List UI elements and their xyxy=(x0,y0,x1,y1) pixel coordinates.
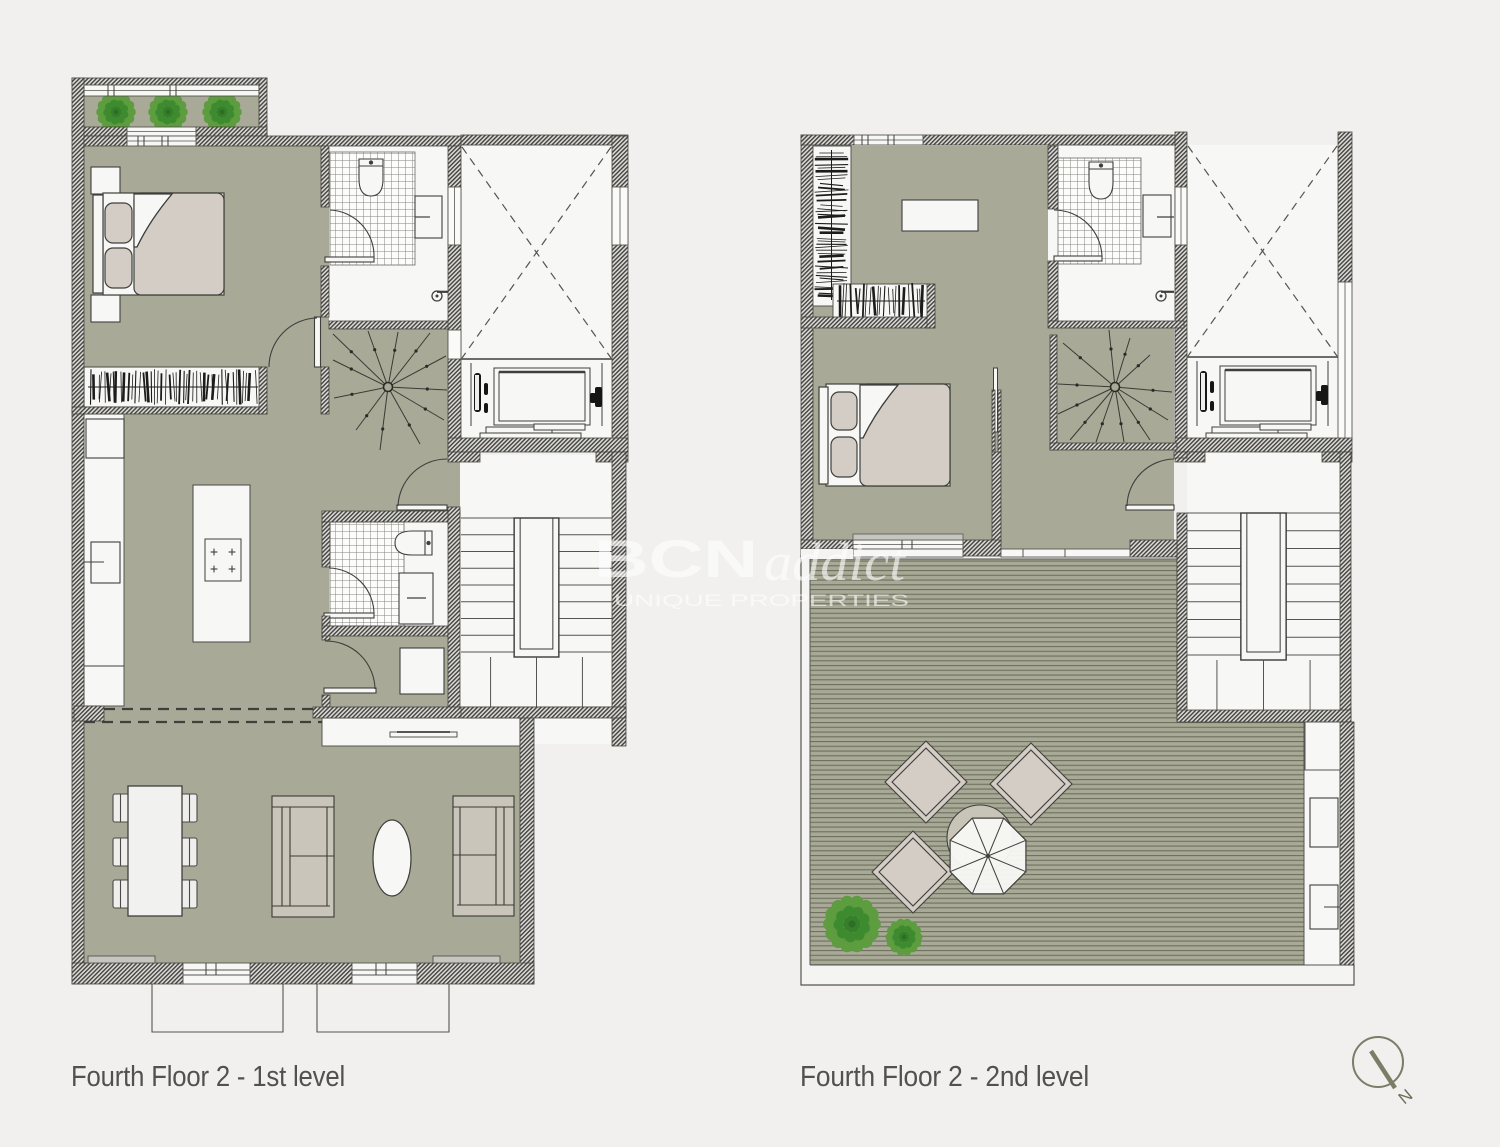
svg-text:BCN: BCN xyxy=(594,530,758,589)
svg-text:Fourth Floor 2 - 1st level: Fourth Floor 2 - 1st level xyxy=(71,1061,345,1093)
svg-text:Fourth Floor 2 - 2nd level: Fourth Floor 2 - 2nd level xyxy=(800,1061,1089,1093)
svg-text:addict: addict xyxy=(764,532,907,592)
svg-text:UNIQUE PROPERTIES: UNIQUE PROPERTIES xyxy=(614,591,909,610)
